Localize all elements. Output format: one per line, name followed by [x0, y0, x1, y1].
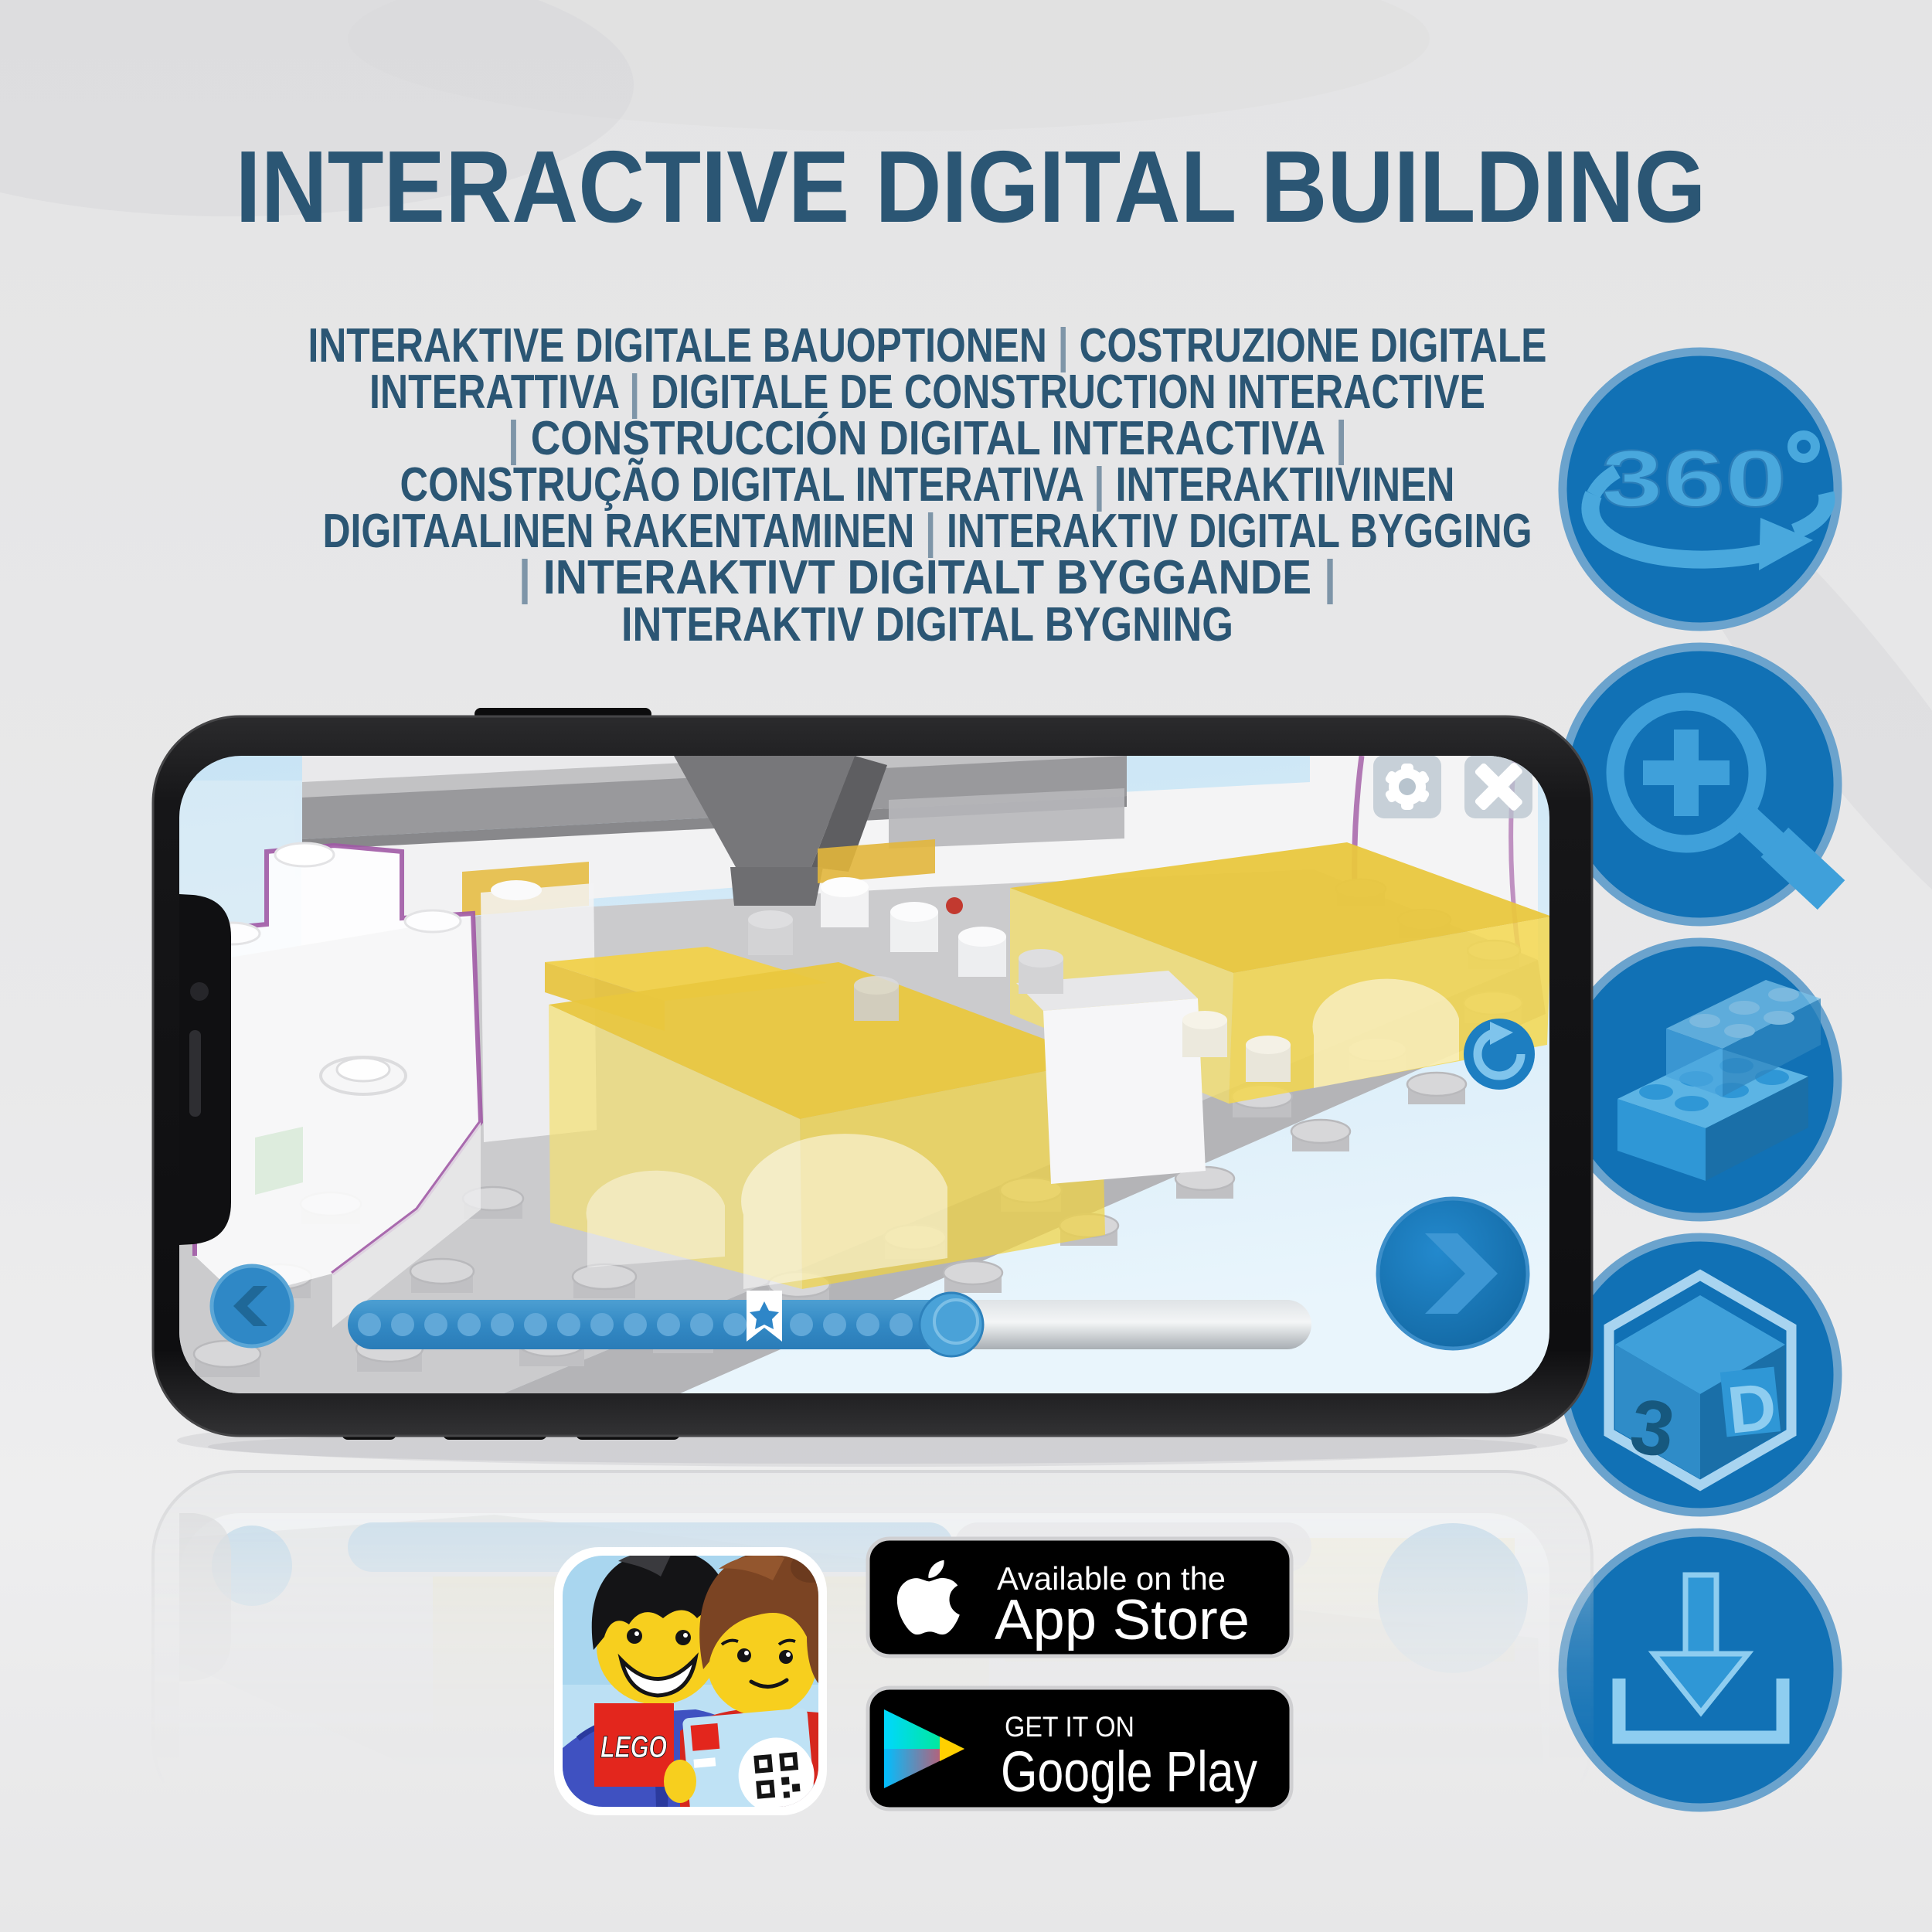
svg-text:GET IT ON: GET IT ON	[1005, 1711, 1134, 1743]
svg-text:| INTERAKTIVT DIGITALT BYGGAND: | INTERAKTIVT DIGITALT BYGGANDE |	[519, 551, 1336, 605]
svg-text:360: 360	[1601, 434, 1787, 524]
svg-text:Google Play: Google Play	[1001, 1740, 1257, 1804]
svg-text:INTERACTIVE DIGITAL BUILDING: INTERACTIVE DIGITAL BUILDING	[236, 130, 1706, 243]
svg-text:App Store: App Store	[995, 1589, 1250, 1651]
svg-text:LEGO: LEGO	[600, 1730, 667, 1764]
svg-text:D: D	[1724, 1369, 1780, 1448]
svg-text:INTERAKTIV DIGITAL BYGNING: INTERAKTIV DIGITAL BYGNING	[621, 598, 1233, 651]
